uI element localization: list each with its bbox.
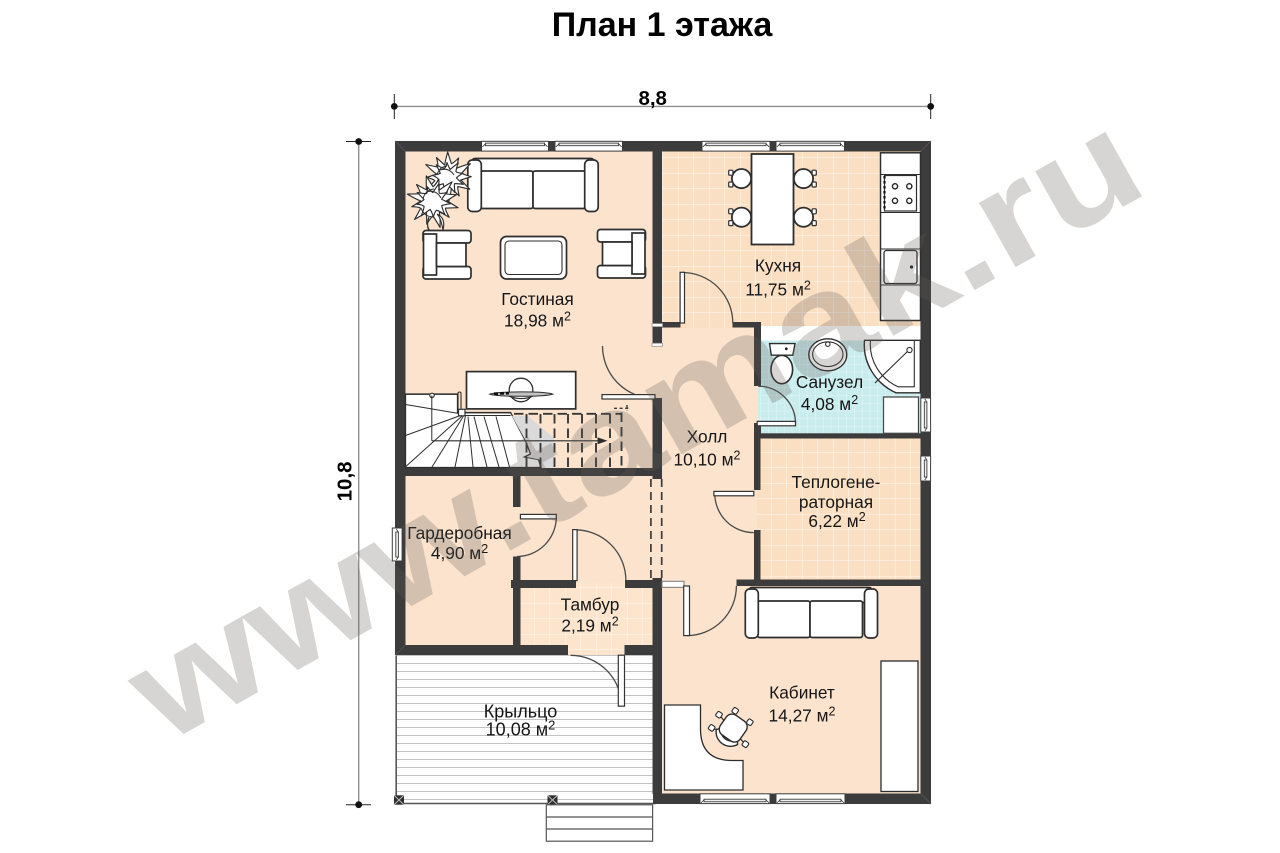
svg-text:18,98 м2: 18,98 м2 — [504, 310, 571, 331]
svg-text:10,08 м2: 10,08 м2 — [486, 718, 556, 740]
svg-text:2,19 м2: 2,19 м2 — [561, 615, 618, 636]
svg-text:Крыльцо: Крыльцо — [484, 702, 557, 722]
svg-text:Кабинет: Кабинет — [769, 682, 835, 702]
svg-text:8,8: 8,8 — [638, 87, 667, 110]
svg-text:Теплогене-: Теплогене- — [792, 472, 881, 492]
svg-text:раторная: раторная — [799, 492, 873, 512]
svg-text:План 1 этажа: План 1 этажа — [552, 6, 774, 44]
svg-text:6,22 м2: 6,22 м2 — [808, 510, 865, 531]
svg-text:Тамбур: Тамбур — [561, 595, 620, 615]
svg-text:14,27 м2: 14,27 м2 — [769, 705, 836, 726]
svg-text:Гостиная: Гостиная — [501, 289, 574, 309]
